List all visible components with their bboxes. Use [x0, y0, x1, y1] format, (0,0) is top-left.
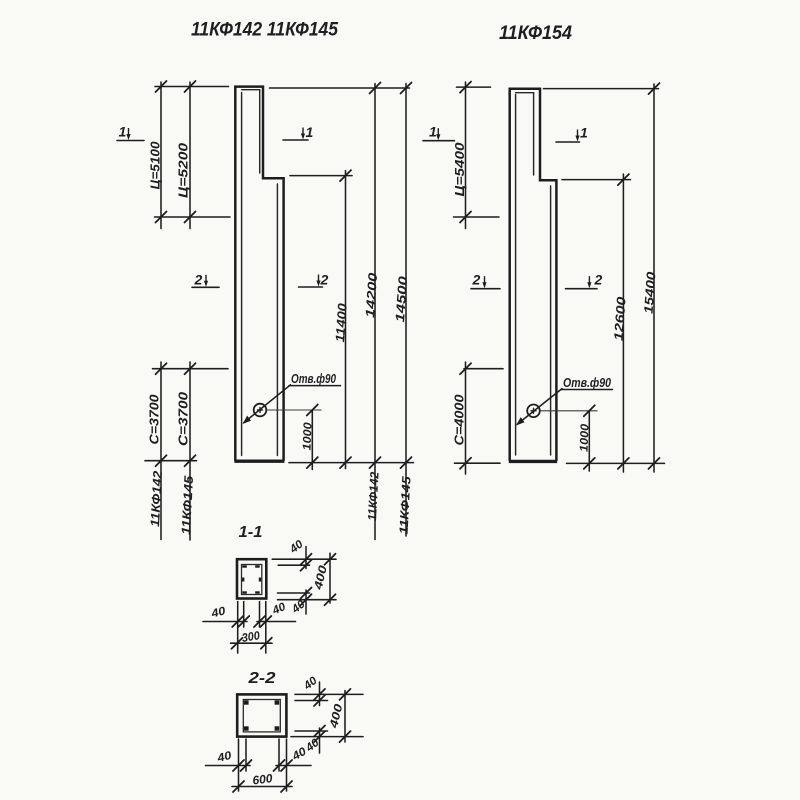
svg-text:С=4000: С=4000: [452, 394, 467, 446]
svg-text:11КФ145: 11КФ145: [179, 474, 196, 535]
svg-text:Ц=5400: Ц=5400: [452, 142, 467, 197]
svg-text:1000: 1000: [302, 422, 315, 451]
svg-text:11КФ145: 11КФ145: [397, 476, 414, 535]
svg-text:14500: 14500: [393, 276, 410, 323]
svg-text:1: 1: [429, 124, 437, 140]
svg-text:2: 2: [194, 271, 203, 287]
svg-text:40: 40: [270, 601, 288, 618]
svg-text:2: 2: [594, 272, 603, 288]
svg-text:Отв.ф90: Отв.ф90: [563, 376, 611, 390]
svg-text:40: 40: [287, 538, 306, 556]
svg-text:1-1: 1-1: [239, 524, 263, 541]
svg-text:Ц=5200: Ц=5200: [176, 142, 191, 198]
svg-text:1: 1: [306, 124, 314, 140]
svg-text:40: 40: [209, 605, 227, 620]
svg-text:11КФ142 11КФ145: 11КФ142 11КФ145: [191, 20, 338, 41]
svg-text:600: 600: [252, 771, 274, 787]
svg-text:15400: 15400: [642, 271, 659, 314]
svg-text:1: 1: [119, 124, 127, 140]
svg-text:2: 2: [472, 271, 481, 287]
svg-text:2: 2: [320, 272, 329, 288]
svg-text:Отв.ф90: Отв.ф90: [291, 372, 336, 386]
svg-text:11400: 11400: [333, 303, 350, 343]
svg-text:40: 40: [301, 675, 320, 693]
svg-text:С=3700: С=3700: [176, 391, 191, 446]
svg-text:11КФ142: 11КФ142: [148, 470, 165, 527]
svg-text:11КФ154: 11КФ154: [499, 23, 572, 44]
svg-text:С=3700: С=3700: [147, 394, 162, 445]
svg-text:Ц=5100: Ц=5100: [148, 141, 163, 190]
svg-text:300: 300: [241, 628, 261, 645]
svg-text:1000: 1000: [579, 423, 592, 452]
svg-text:14200: 14200: [363, 272, 380, 318]
svg-text:40: 40: [215, 750, 233, 765]
svg-text:2-2: 2-2: [247, 670, 275, 687]
svg-text:400: 400: [328, 702, 346, 730]
svg-text:12600: 12600: [612, 296, 629, 341]
svg-text:11КФ142: 11КФ142: [365, 471, 382, 521]
svg-text:400: 400: [312, 564, 330, 592]
svg-text:1: 1: [580, 125, 588, 141]
